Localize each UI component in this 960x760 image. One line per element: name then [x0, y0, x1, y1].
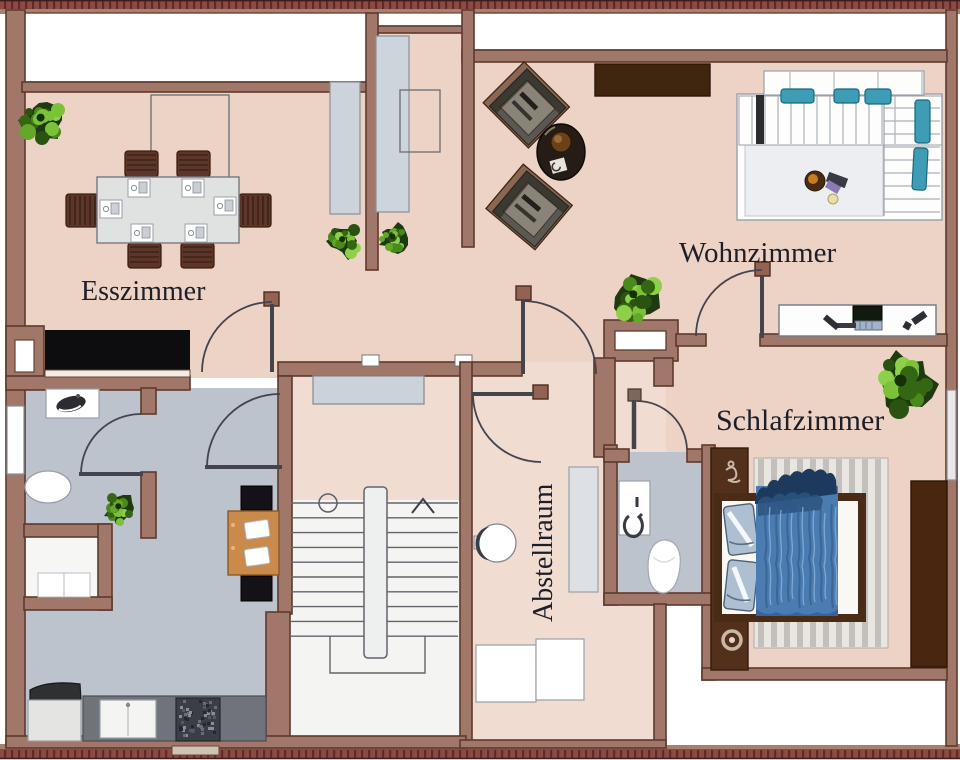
svg-text:Schlafzimmer: Schlafzimmer: [716, 404, 884, 437]
svg-text:Abstellraum: Abstellraum: [528, 483, 559, 622]
svg-text:Wohnzimmer: Wohnzimmer: [679, 237, 836, 269]
svg-text:Esszimmer: Esszimmer: [81, 276, 206, 307]
